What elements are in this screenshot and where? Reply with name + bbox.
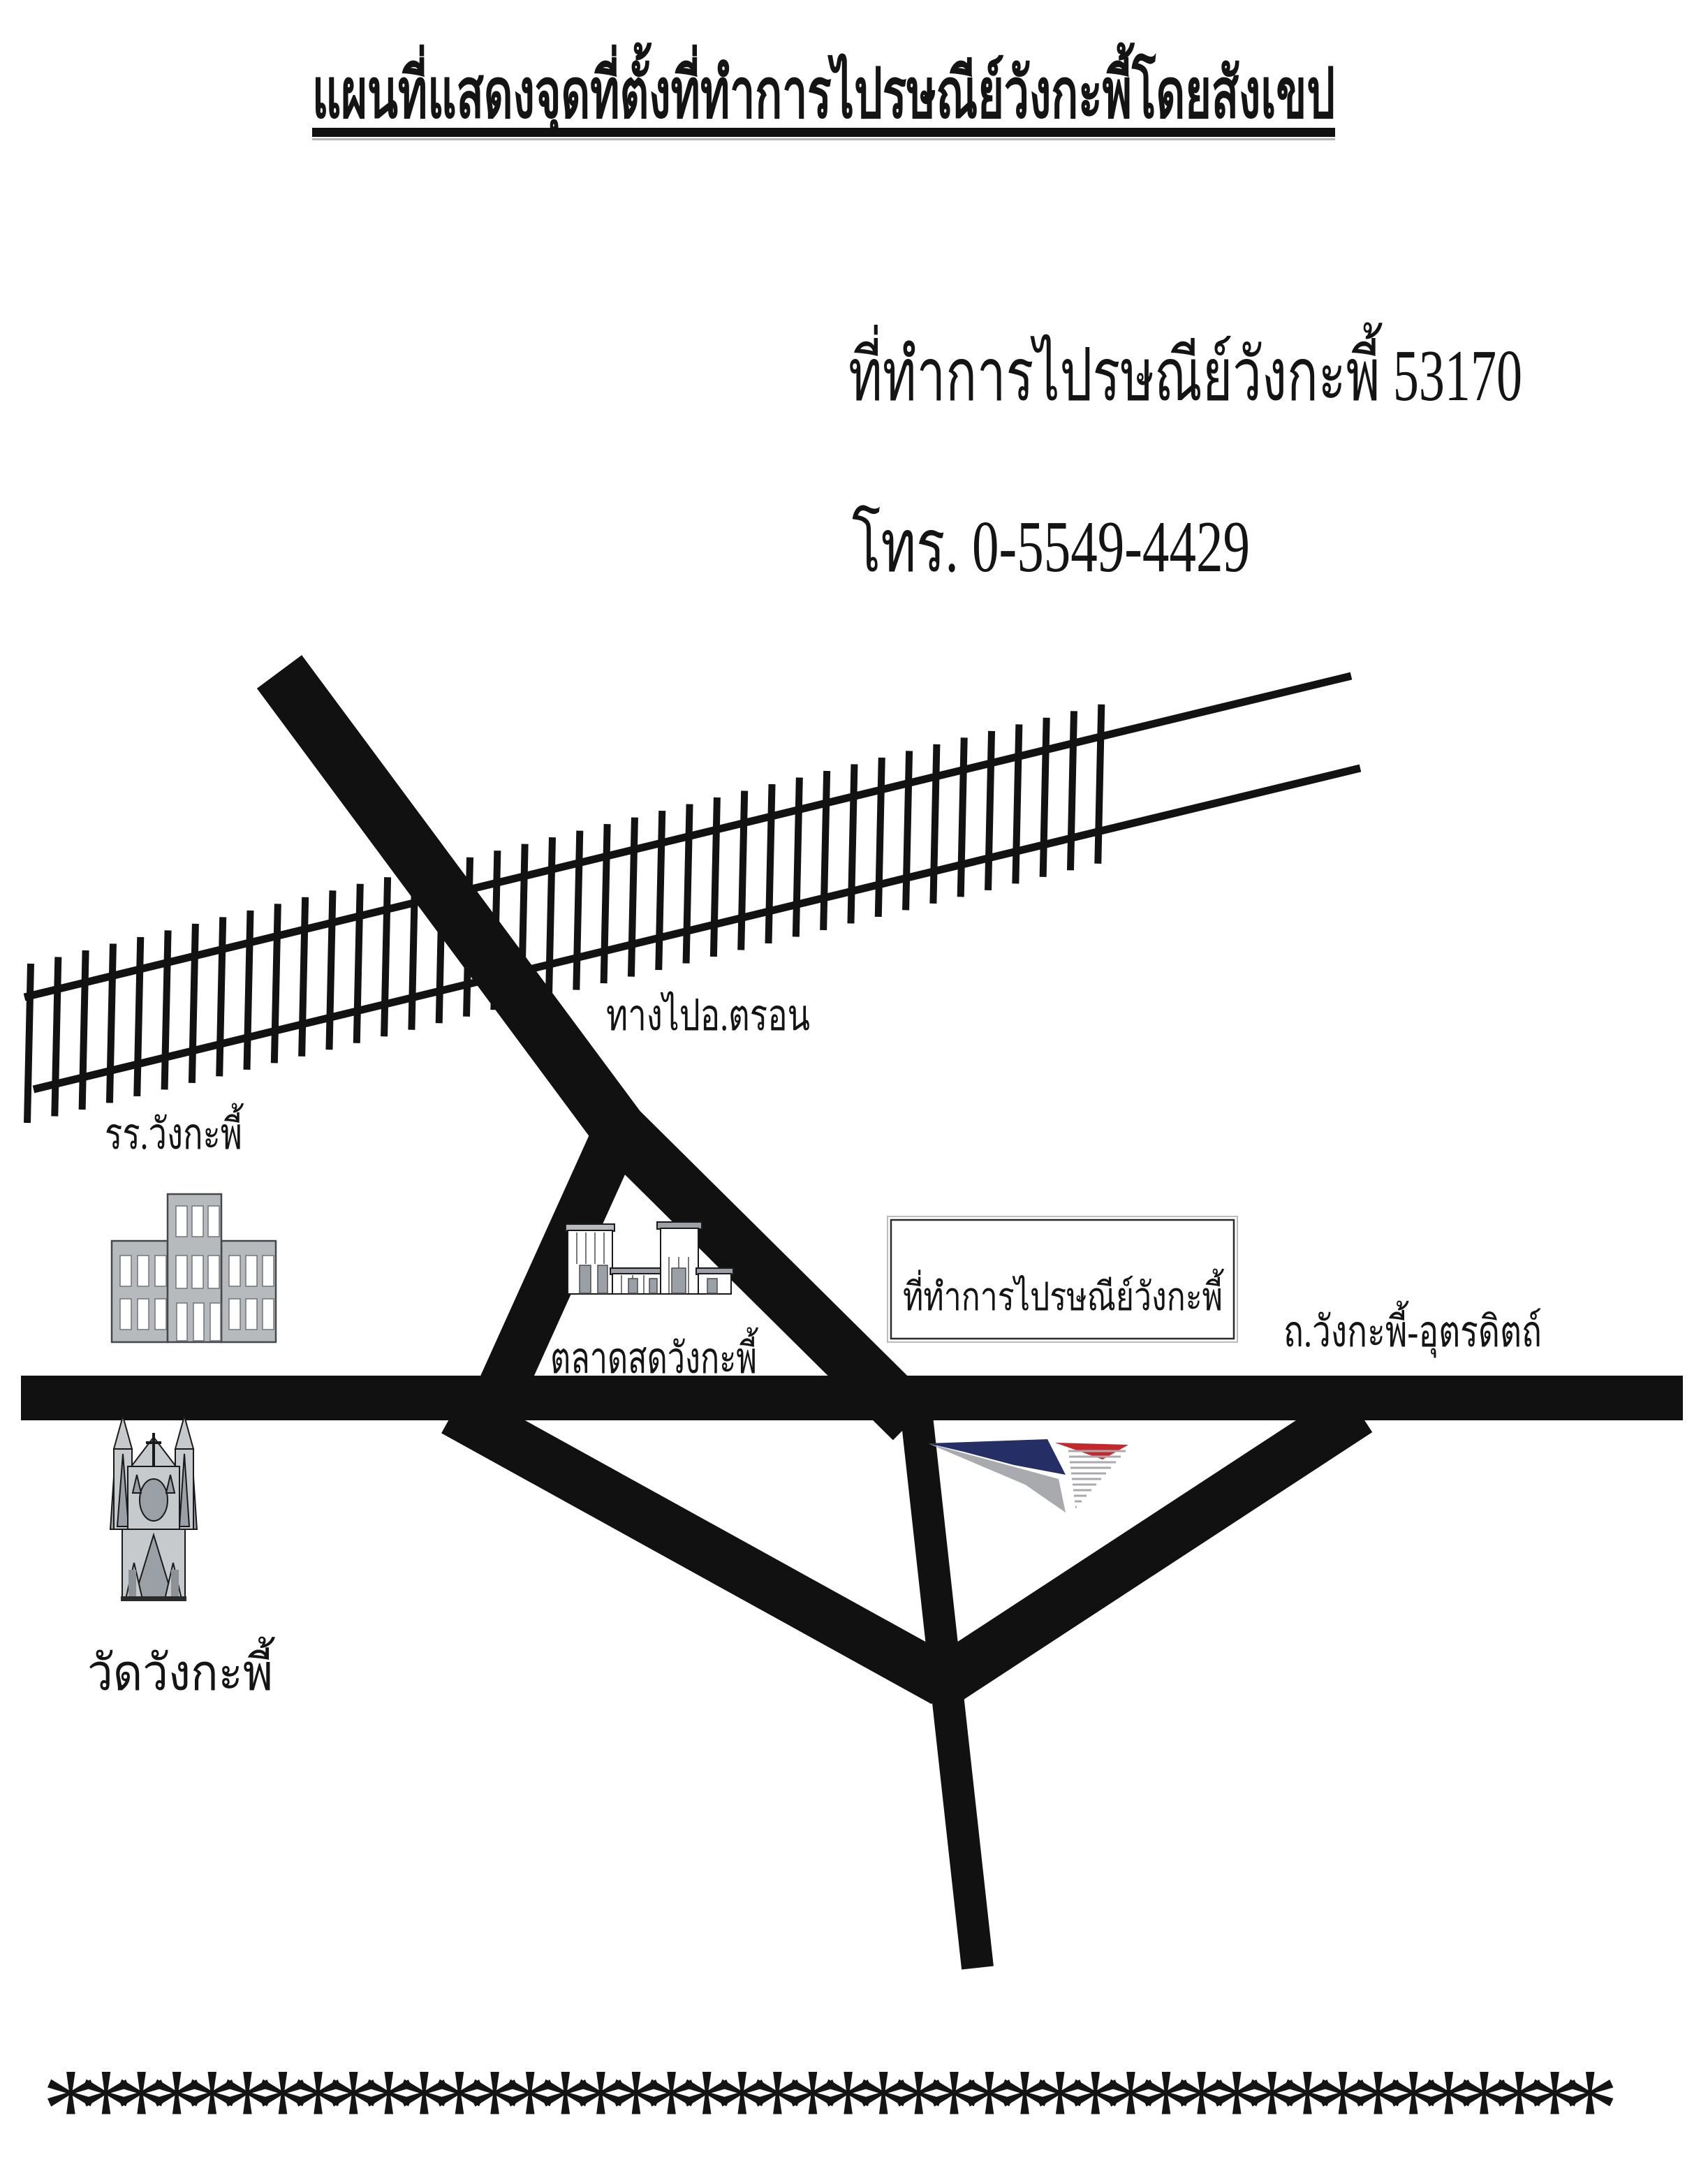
school-window xyxy=(208,1256,219,1288)
market-label: ตลาดสดวังกะพี้ xyxy=(550,1327,759,1383)
header: แผนที่แสดงจุดที่ตั้งที่ทำการไปรษณีย์วังก… xyxy=(312,42,1522,587)
railway-tie xyxy=(1098,705,1101,864)
railway-tie xyxy=(686,804,690,964)
school-window xyxy=(229,1299,240,1330)
school-window xyxy=(138,1256,149,1286)
railway-tie xyxy=(384,877,388,1036)
map-document-page: แผนที่แสดงจุดที่ตั้งที่ทำการไปรษณีย์วังก… xyxy=(0,0,1708,2171)
railway-tie xyxy=(933,744,936,904)
office-name-line: ที่ทำการไปรษณีย์วังกะพี้ 53170 xyxy=(848,322,1522,416)
logo-stripes xyxy=(1068,1451,1126,1507)
school-window xyxy=(246,1256,257,1286)
school-window xyxy=(177,1303,187,1341)
school-window xyxy=(208,1206,219,1237)
railway-tie xyxy=(658,811,662,970)
title-underline xyxy=(312,128,1335,137)
railway-tie xyxy=(192,924,196,1083)
railway-tie xyxy=(906,751,909,910)
railway-tie xyxy=(961,737,964,897)
school-label: รร.วังกะพี้ xyxy=(105,1103,244,1158)
railway-tie xyxy=(741,791,744,950)
railway-tie xyxy=(796,777,800,936)
post-office-callout: ที่ทำการไปรษณีย์วังกะพี้ xyxy=(888,1216,1237,1342)
school-window xyxy=(176,1256,187,1288)
railway-tie xyxy=(604,824,608,983)
railway-tie xyxy=(878,758,882,917)
railway-tie xyxy=(823,771,827,930)
tron-road xyxy=(279,672,913,1420)
railway-tie xyxy=(329,890,332,1050)
railway-tie xyxy=(988,731,992,890)
railway-track xyxy=(24,676,1360,1123)
railway-tie xyxy=(714,797,717,957)
asterisk-separator-row: ****************************************… xyxy=(42,2045,1619,2171)
main-road-label: ถ.วังกะพี้-อุตรดิตถ์ xyxy=(1283,1300,1542,1357)
school-window xyxy=(193,1303,204,1341)
school-window xyxy=(229,1256,240,1286)
railway-tie xyxy=(302,897,305,1057)
school-window xyxy=(192,1206,203,1237)
school-window xyxy=(120,1256,131,1286)
map-canvas: แผนที่แสดงจุดที่ตั้งที่ทำการไปรษณีย์วังก… xyxy=(0,0,1708,2171)
school-window xyxy=(138,1299,149,1330)
railway-tie xyxy=(576,831,580,990)
railway-tie xyxy=(357,884,360,1043)
temple-icon xyxy=(110,1416,197,1601)
school-window xyxy=(120,1299,131,1330)
railway-tie xyxy=(1070,711,1074,870)
railway-tie xyxy=(769,784,772,943)
tron-direction-label: ทางไปอ.ตรอน xyxy=(606,991,810,1040)
v-left-road xyxy=(454,1411,944,1681)
title-underline-shadow xyxy=(312,138,1335,140)
railway-tie xyxy=(54,957,58,1116)
railway-tie xyxy=(165,930,168,1089)
railway-tie xyxy=(82,950,86,1110)
railway-tie xyxy=(851,764,854,923)
school-window xyxy=(263,1299,274,1330)
railway-tie xyxy=(247,911,251,1070)
school-windows xyxy=(120,1206,274,1341)
school-window xyxy=(176,1206,187,1237)
school-window xyxy=(210,1303,221,1341)
page-title: แผนที่แสดงจุดที่ตั้งที่ทำการไปรษณีย์วังก… xyxy=(312,42,1335,137)
school-window xyxy=(263,1256,274,1286)
school-window xyxy=(192,1256,203,1288)
school-window xyxy=(246,1299,257,1330)
thailand-post-logo-icon xyxy=(928,1439,1128,1513)
post-office-box-label: ที่ทำการไปรษณีย์วังกะพี้ xyxy=(903,1269,1224,1319)
railway-tie xyxy=(110,943,113,1103)
railway-tie xyxy=(549,837,552,996)
railway-tie xyxy=(137,937,140,1096)
phone-line: โทร. 0-5549-4429 xyxy=(852,506,1250,587)
school-building-icon xyxy=(112,1194,276,1342)
railway-tie xyxy=(219,917,223,1076)
railway-tie xyxy=(1015,724,1019,883)
school-window xyxy=(155,1256,166,1286)
railway-tie xyxy=(27,964,31,1123)
railway-tie xyxy=(631,818,635,977)
rail-bottom xyxy=(34,768,1360,1089)
railway-tie xyxy=(274,904,278,1063)
school-window xyxy=(155,1299,166,1330)
railway-tie xyxy=(1043,718,1047,877)
temple-label: วัดวังกะพี้ xyxy=(87,1636,275,1701)
